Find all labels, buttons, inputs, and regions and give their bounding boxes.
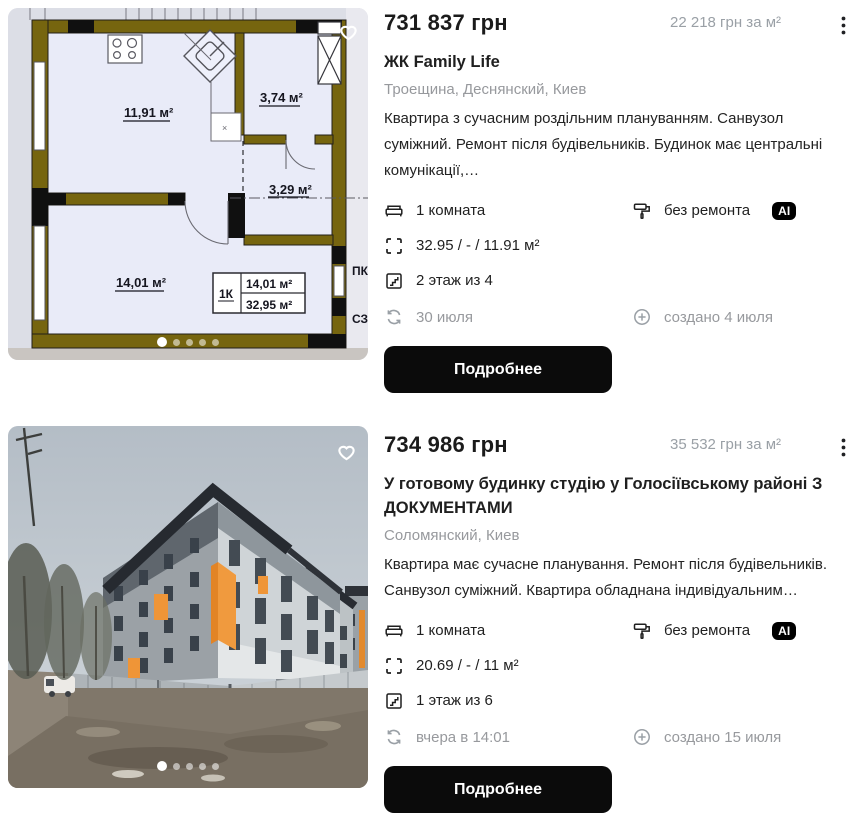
ai-badge: AI [772, 202, 796, 220]
more-options-button[interactable] [839, 12, 848, 39]
paint-roller-icon [632, 201, 652, 221]
paint-roller-icon [632, 621, 652, 641]
carousel-dots [8, 761, 368, 771]
refresh-icon [384, 307, 404, 327]
svg-text:3,74 м²: 3,74 м² [260, 90, 304, 105]
listing-attributes: 1 комната без ремонта AI 32.95 [384, 193, 848, 298]
date-updated: вчера в 14:01 [384, 727, 632, 747]
refresh-icon [384, 727, 404, 747]
attr-rooms: 1 комната [384, 621, 632, 641]
date-created: создано 4 июля [632, 307, 848, 327]
listing-location: Соломянский, Киев [384, 527, 848, 544]
attr-renovation: без ремонта AI [632, 201, 848, 221]
carousel-dot[interactable] [199, 339, 206, 346]
area-icon [384, 236, 404, 256]
stove-icon [108, 35, 142, 63]
carousel-dot[interactable] [186, 339, 193, 346]
carousel-dot[interactable] [186, 763, 193, 770]
stairs-icon [384, 691, 404, 711]
carousel-dot[interactable] [212, 763, 219, 770]
listing-photo-carousel[interactable]: × [8, 8, 368, 360]
listing-title[interactable]: ЖК Family Life [384, 50, 848, 74]
date-updated: 30 июля [384, 307, 632, 327]
attr-floor: 2 этаж из 4 [384, 271, 632, 291]
svg-text:11,91 м²: 11,91 м² [124, 105, 174, 120]
carousel-dot[interactable] [199, 763, 206, 770]
svg-text:1К: 1К [219, 287, 234, 301]
attr-floor: 1 этаж из 6 [384, 691, 632, 711]
plan-x-mark: × [222, 123, 227, 133]
price-row: 731 837 грн 22 218 грн за м² [384, 10, 848, 42]
details-button[interactable]: Подробнее [384, 346, 612, 393]
carousel-dot[interactable] [157, 337, 167, 347]
svg-text:14,01 м²: 14,01 м² [116, 275, 167, 290]
attr-area: 20.69 / - / 11 м² [384, 656, 632, 676]
listing-price: 734 986 грн [384, 432, 508, 457]
listings-page: × [0, 0, 856, 813]
heart-icon [337, 20, 360, 42]
carousel-dots [8, 337, 368, 347]
ai-badge: AI [772, 622, 796, 640]
svg-text:3,29 м²: 3,29 м² [269, 182, 313, 197]
listing-photo-carousel[interactable] [8, 426, 368, 788]
listing-location: Троещина, Деснянский, Киев [384, 81, 848, 98]
attr-area: 32.95 / - / 11.91 м² [384, 236, 632, 256]
listing-title[interactable]: У готовому будинку студію у Голосіївсько… [384, 472, 848, 520]
building-photo [8, 426, 368, 788]
kebab-icon [841, 16, 846, 35]
attr-rooms: 1 комната [384, 201, 632, 221]
carousel-dot[interactable] [157, 761, 167, 771]
area-icon [384, 656, 404, 676]
carousel-dot[interactable] [173, 339, 180, 346]
svg-text:СЗ: СЗ [352, 312, 368, 326]
bed-icon [384, 201, 404, 221]
price-per-m2: 35 532 грн за м² [670, 436, 781, 453]
stairs-icon [384, 271, 404, 291]
svg-text:14,01 м²: 14,01 м² [246, 277, 292, 291]
attr-renovation: без ремонта AI [632, 621, 848, 641]
details-button[interactable]: Подробнее [384, 766, 612, 813]
listing-content: 734 986 грн 35 532 грн за м² У готовому … [384, 426, 848, 813]
favorite-button[interactable] [333, 438, 360, 464]
heart-icon [335, 440, 358, 462]
listing-card[interactable]: × [0, 8, 856, 393]
plus-circle-icon [632, 727, 652, 747]
listing-card[interactable]: 734 986 грн 35 532 грн за м² У готовому … [0, 426, 856, 813]
listing-content: 731 837 грн 22 218 грн за м² ЖК Family L… [384, 8, 848, 393]
listing-price: 731 837 грн [384, 10, 508, 35]
listing-attributes: 1 комната без ремонта AI 20.69 [384, 613, 848, 718]
bed-icon [384, 621, 404, 641]
listing-description: Квартира з сучасним роздільним плануванн… [384, 106, 848, 184]
listing-dates: вчера в 14:01 создано 15 июля [384, 720, 848, 754]
svg-text:32,95 м²: 32,95 м² [246, 298, 292, 312]
price-per-m2: 22 218 грн за м² [670, 14, 781, 31]
listing-dates: 30 июля создано 4 июля [384, 300, 848, 334]
favorite-button[interactable] [335, 18, 362, 44]
carousel-dot[interactable] [212, 339, 219, 346]
date-created: создано 15 июля [632, 727, 848, 747]
listing-description: Квартира має сучасне планування. Ремонт … [384, 552, 848, 604]
kebab-icon [841, 438, 846, 457]
svg-text:ПК: ПК [352, 264, 368, 278]
price-row: 734 986 грн 35 532 грн за м² [384, 432, 848, 464]
plan-area-table: 1К 14,01 м² 32,95 м² [213, 273, 305, 313]
plus-circle-icon [632, 307, 652, 327]
floorplan-image: × [8, 8, 368, 360]
carousel-dot[interactable] [173, 763, 180, 770]
more-options-button[interactable] [839, 434, 848, 461]
